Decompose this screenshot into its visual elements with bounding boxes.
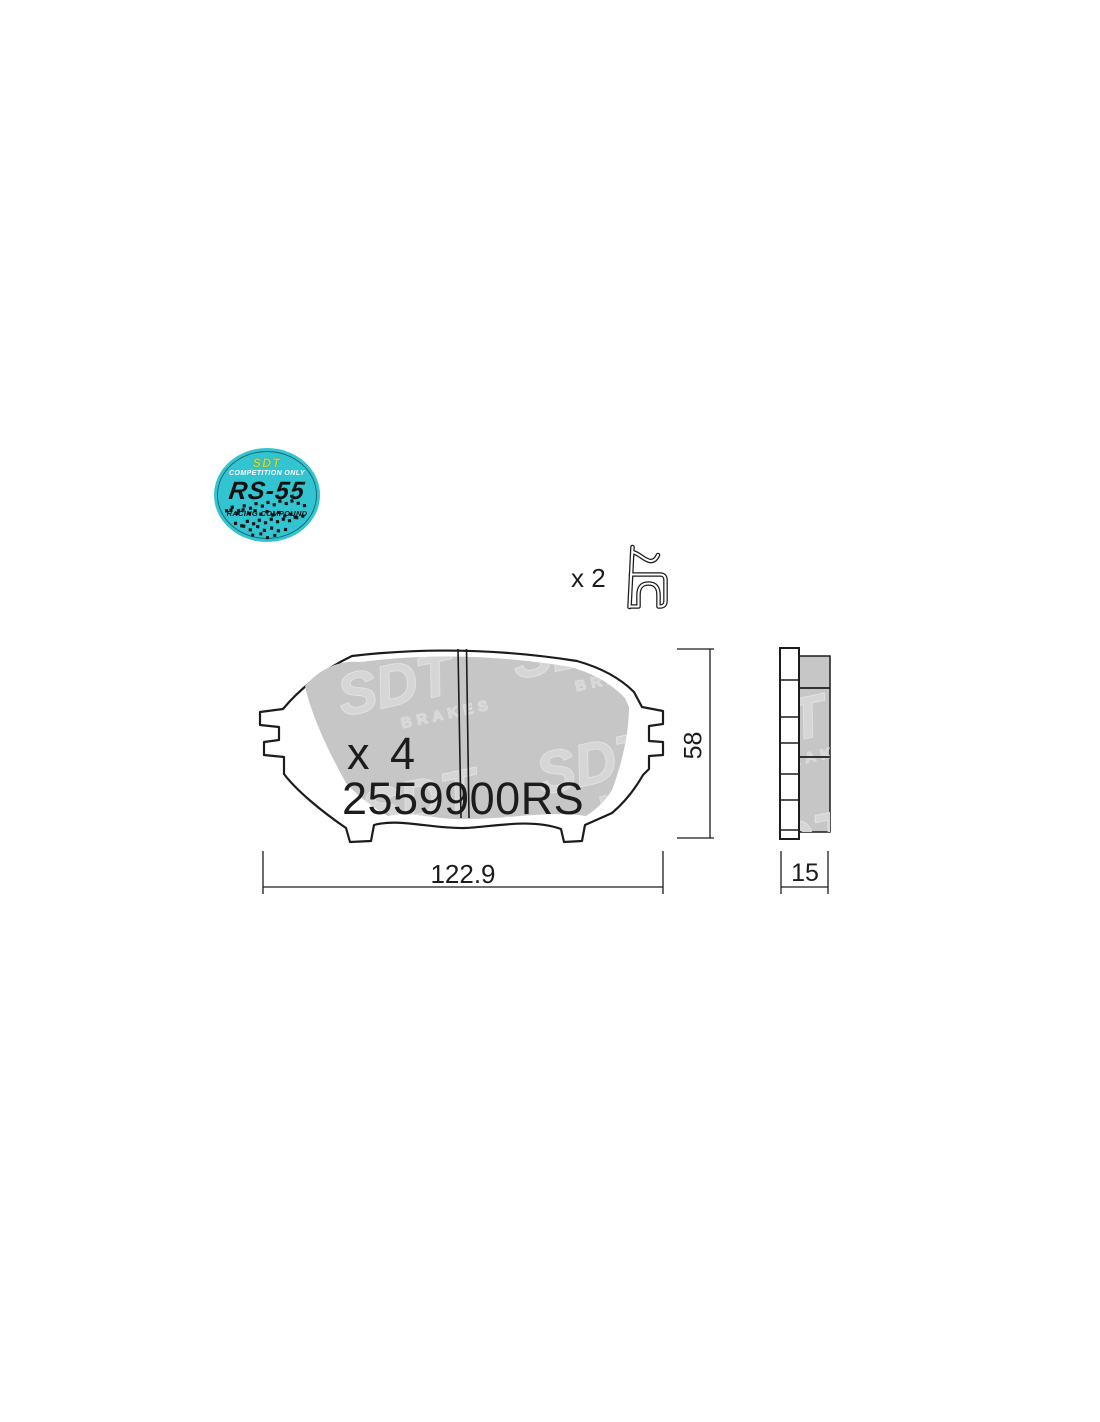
width-dimension-label: 122.9 xyxy=(403,861,523,887)
drawing-linework: SDT BRAKES xyxy=(0,0,1100,1422)
side-friction-watermark xyxy=(799,656,831,832)
badge-competition-only-text: COMPETITION ONLY xyxy=(214,470,320,477)
height-dimension-label: 58 xyxy=(682,716,707,776)
spring-clip-drawing xyxy=(630,547,666,607)
badge-compound-name-text: RS-55 xyxy=(212,479,322,504)
brake-pad-technical-drawing: SDT BRAKES xyxy=(0,0,1100,1422)
clip-quantity-label: x 2 xyxy=(571,565,606,591)
part-number-label: 2559900RS xyxy=(342,776,584,821)
badge-brand-text: SDT xyxy=(214,457,320,469)
badge-racing-compound-text: RACING COMPOUND xyxy=(214,510,320,518)
compound-badge: SDT COMPETITION ONLY RS-55 RACING COMPOU… xyxy=(214,448,320,542)
pad-side-view xyxy=(780,648,830,839)
pad-quantity-label: x 4 xyxy=(347,731,415,776)
thickness-dimension-label: 15 xyxy=(765,861,845,886)
